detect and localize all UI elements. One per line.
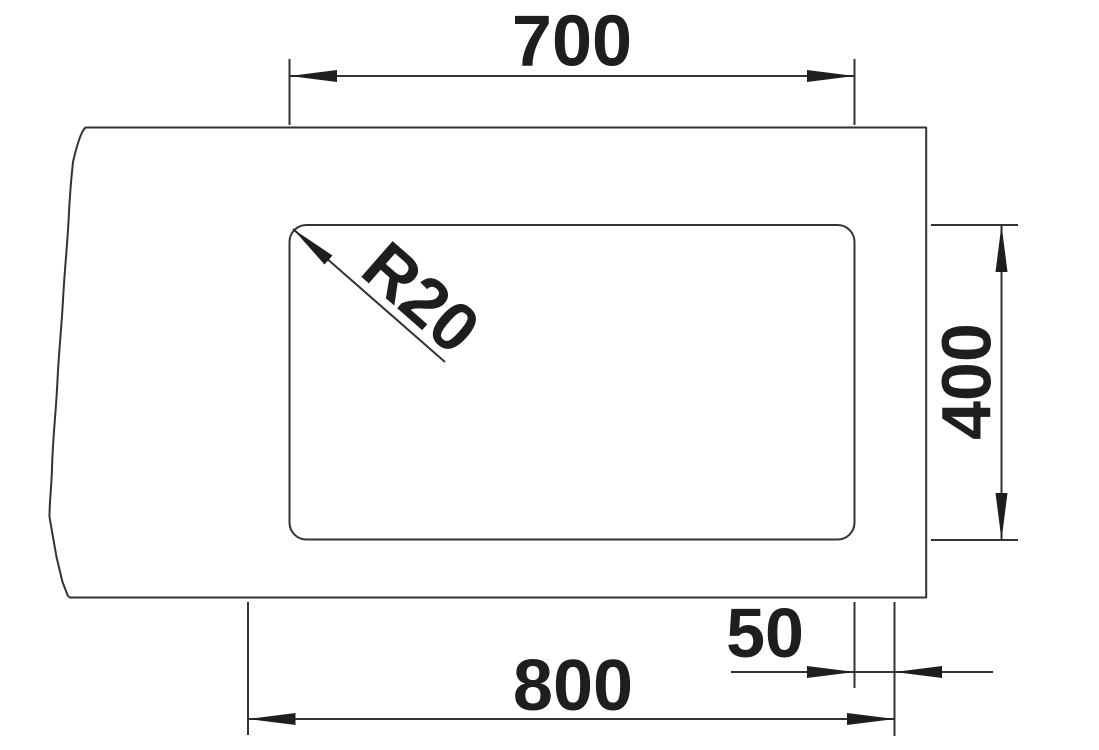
svg-text:700: 700	[512, 2, 632, 82]
svg-text:400: 400	[928, 323, 1006, 440]
svg-text:50: 50	[726, 594, 804, 672]
svg-text:800: 800	[513, 646, 633, 726]
